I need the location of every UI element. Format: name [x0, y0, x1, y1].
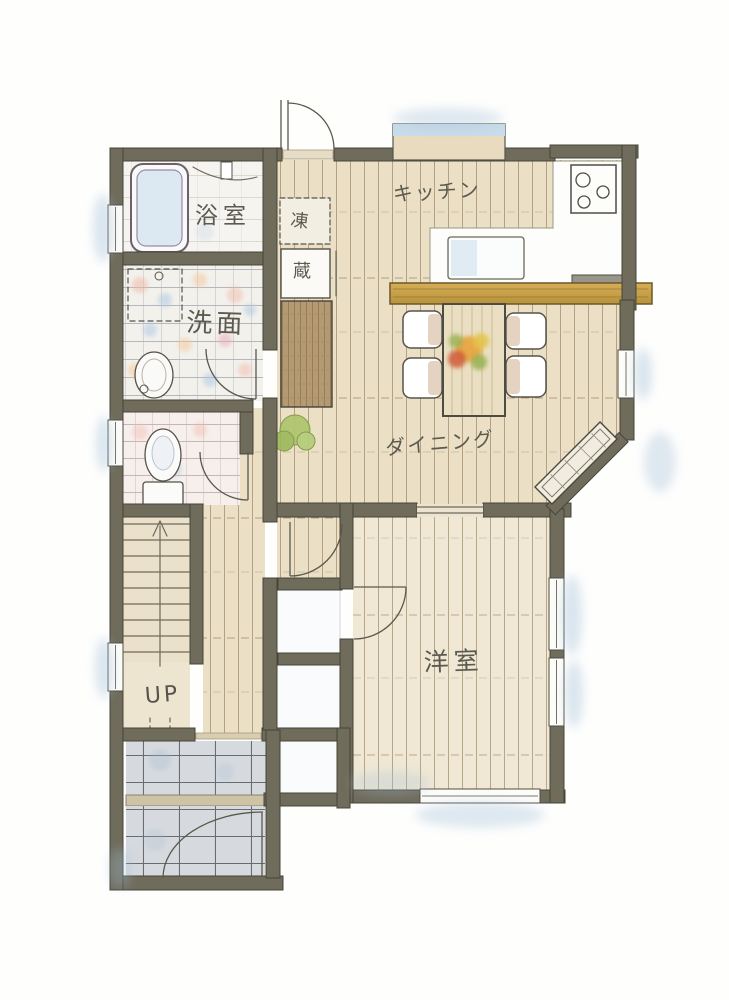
stove-cooktop — [571, 165, 616, 213]
washroom-label: 洗面 — [186, 302, 247, 341]
closet-3 — [279, 741, 337, 793]
closet-nook-floor — [277, 517, 340, 579]
counter-bar — [390, 283, 652, 304]
bathroom-label: 浴室 — [195, 196, 251, 230]
stairs-floor — [123, 510, 190, 662]
back-door-threshold — [283, 150, 333, 159]
kitchen-sink — [448, 237, 524, 279]
entry-step — [126, 795, 267, 806]
entry-hall-tile — [126, 741, 266, 797]
bathroom-wall-vent — [221, 162, 232, 179]
wash-basin — [135, 352, 173, 398]
freezer-label: 凍 — [289, 206, 310, 234]
hall-step — [196, 733, 261, 739]
storage-cabinet — [281, 301, 332, 407]
toilet — [143, 429, 183, 506]
storage-label: 蔵 — [293, 257, 311, 283]
western-room-label: 洋室 — [423, 641, 484, 679]
sliding-door-opening — [417, 504, 483, 517]
floorplan-drawing — [0, 0, 729, 1000]
floorplan-page: 浴室 洗面 キッチン ダイニング 洋室 UP 凍 蔵 — [0, 0, 729, 1000]
bathtub — [131, 164, 188, 252]
back-door — [281, 100, 334, 150]
kitchen-top-window — [393, 124, 505, 161]
closet-1 — [277, 590, 340, 653]
stairs-up-label: UP — [144, 682, 181, 709]
closet-2 — [277, 665, 340, 729]
kitchen-label: キッチン — [392, 173, 481, 207]
